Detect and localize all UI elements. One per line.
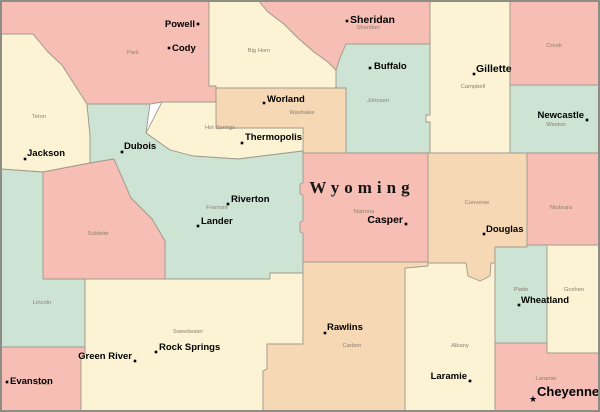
city-label-dubois: Dubois xyxy=(124,141,156,152)
county-campbell xyxy=(426,0,510,153)
county-label-converse: Converse xyxy=(465,200,490,206)
city-dot-icon xyxy=(155,351,158,354)
city-label-wheatland: Wheatland xyxy=(521,295,569,306)
city-label-powell: Powell xyxy=(165,19,195,30)
county-label-laramie: Laramie xyxy=(536,376,557,382)
city-dot-icon xyxy=(227,203,230,206)
city-label-casper: Casper xyxy=(367,214,403,226)
city-green-river: Green River xyxy=(78,351,136,362)
city-wheatland: Wheatland xyxy=(518,295,570,306)
city-dot-icon xyxy=(197,225,200,228)
county-label-park: Park xyxy=(127,50,139,56)
city-thermopolis: Thermopolis xyxy=(241,132,302,144)
city-worland: Worland xyxy=(263,94,305,105)
city-label-sheridan: Sheridan xyxy=(350,14,395,26)
map-canvas: TetonParkBig HornSheridanJohnsonCampbell… xyxy=(0,0,600,412)
county-label-goshen: Goshen xyxy=(564,287,584,293)
wyoming-county-map: TetonParkBig HornSheridanJohnsonCampbell… xyxy=(0,0,600,412)
city-label-newcastle: Newcastle xyxy=(538,110,584,121)
county-label-campbell: Campbell xyxy=(461,84,486,90)
city-sheridan: Sheridan xyxy=(346,14,395,26)
city-powell: Powell xyxy=(165,19,199,30)
city-dot-icon xyxy=(473,73,476,76)
county-label-weston: Weston xyxy=(546,122,566,128)
city-label-cody: Cody xyxy=(172,43,196,54)
city-dot-icon xyxy=(263,102,266,105)
city-label-buffalo: Buffalo xyxy=(374,61,407,72)
city-label-laramie: Laramie xyxy=(431,371,467,382)
city-dot-icon xyxy=(346,20,349,23)
city-gillette: Gillette xyxy=(473,63,512,75)
city-dot-icon xyxy=(134,360,137,363)
city-label-gillette: Gillette xyxy=(476,63,512,75)
county-albany xyxy=(405,263,495,412)
city-label-cheyenne: Cheyenne xyxy=(537,384,599,399)
city-label-riverton: Riverton xyxy=(231,194,270,205)
city-cody: Cody xyxy=(168,43,197,54)
city-dot-icon xyxy=(483,233,486,236)
city-dot-icon xyxy=(24,158,27,161)
county-label-washakie: Washakie xyxy=(289,110,314,116)
city-rawlins: Rawlins xyxy=(324,322,363,334)
county-label-hotsprings: Hot Springs xyxy=(205,125,235,131)
city-label-rawlins: Rawlins xyxy=(327,322,363,333)
city-label-jackson: Jackson xyxy=(27,148,65,159)
city-dot-icon xyxy=(241,142,244,145)
city-dot-icon xyxy=(369,67,372,70)
county-natrona xyxy=(300,153,428,262)
city-dot-icon xyxy=(197,23,200,26)
city-dot-icon xyxy=(324,332,327,335)
city-dot-icon xyxy=(469,380,472,383)
city-label-thermopolis: Thermopolis xyxy=(245,132,302,143)
city-label-evanston: Evanston xyxy=(10,376,53,387)
city-douglas: Douglas xyxy=(483,224,524,235)
city-label-lander: Lander xyxy=(201,216,233,227)
county-niobrara xyxy=(527,153,600,245)
capital-star-icon: ★ xyxy=(529,395,537,405)
county-label-niobrara: Niobrara xyxy=(550,205,573,211)
county-label-sublette: Sublette xyxy=(87,231,108,237)
county-label-crook: Crook xyxy=(546,43,562,49)
city-dot-icon xyxy=(586,119,589,122)
city-casper: Casper xyxy=(367,214,407,226)
county-label-carbon: Carbon xyxy=(342,343,361,349)
city-jackson: Jackson xyxy=(24,148,66,160)
county-label-fremont: Fremont xyxy=(206,205,228,211)
city-newcastle: Newcastle xyxy=(538,110,589,121)
city-dot-icon xyxy=(405,223,408,226)
county-label-lincoln: Lincoln xyxy=(33,300,51,306)
state-title: Wyoming xyxy=(309,178,414,197)
county-label-johnson: Johnson xyxy=(367,98,389,104)
city-rock-springs: Rock Springs xyxy=(155,342,221,353)
city-dubois: Dubois xyxy=(121,141,157,153)
city-label-rock-springs: Rock Springs xyxy=(159,342,220,353)
county-label-platte: Platte xyxy=(514,287,529,293)
city-laramie: Laramie xyxy=(431,371,472,382)
city-lander: Lander xyxy=(197,216,233,227)
county-label-sweetwater: Sweetwater xyxy=(173,329,203,335)
city-evanston: Evanston xyxy=(6,376,53,387)
county-platte xyxy=(495,245,547,343)
city-label-douglas: Douglas xyxy=(486,224,523,235)
county-label-teton: Teton xyxy=(32,114,46,120)
city-label-worland: Worland xyxy=(267,94,305,105)
county-label-albany: Albany xyxy=(451,343,469,349)
city-dot-icon xyxy=(168,47,171,50)
city-dot-icon xyxy=(121,151,124,154)
city-dot-icon xyxy=(518,304,521,307)
county-label-bighorn: Big Horn xyxy=(248,48,271,54)
city-riverton: Riverton xyxy=(227,194,270,205)
city-dot-icon xyxy=(6,381,9,384)
city-buffalo: Buffalo xyxy=(369,61,407,72)
city-label-green-river: Green River xyxy=(78,351,132,362)
